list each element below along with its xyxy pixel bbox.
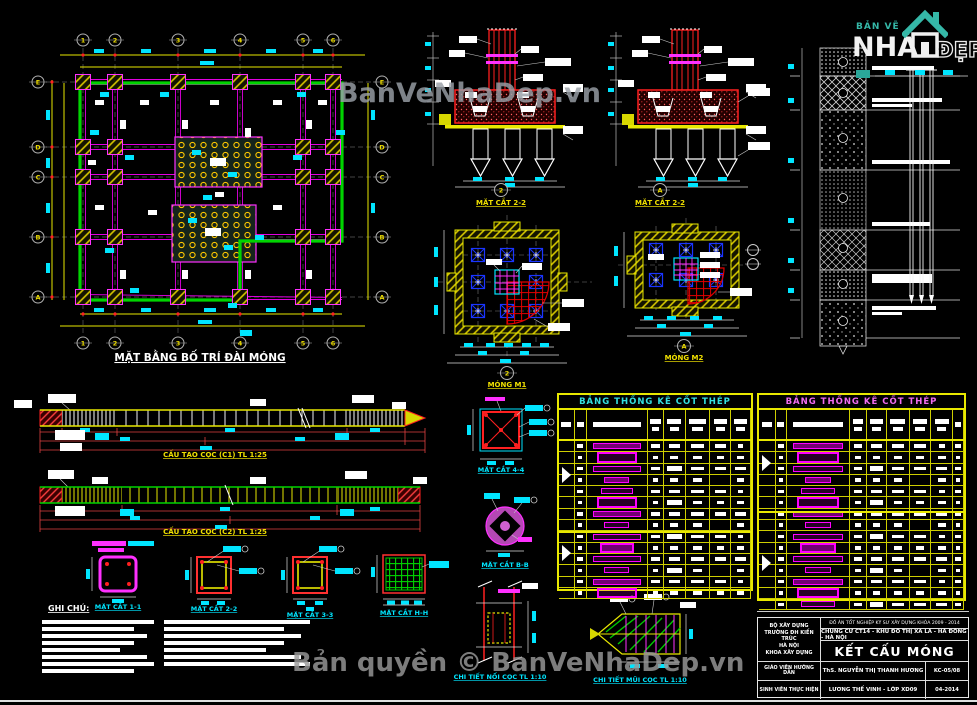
plan-title: MẶT BẰNG BỐ TRÍ ĐÀI MÓNG [114,349,285,364]
table-row [559,452,751,463]
svg-text:E: E [380,79,384,87]
rebar-table-1-header [559,410,751,441]
table-row [759,565,964,576]
table-row [759,543,964,554]
note-line [164,620,310,624]
table-row [759,577,964,588]
table-row [559,565,751,576]
m1-title: MÓNG M1 [488,380,527,389]
notes-col-2 [164,620,310,673]
table-row [759,531,964,542]
table-row [759,497,964,508]
note-line [164,655,301,659]
svg-text:3: 3 [176,340,181,348]
svg-text:5: 5 [301,340,306,348]
note-line [42,634,147,638]
svg-text:C: C [36,174,41,182]
title-block-row: SINH VIÊN THỰC HIỆN LƯƠNG THẾ VINH - LỚP… [758,681,968,699]
table-row [559,531,751,542]
rebar-table-2-body [759,441,964,610]
svg-text:5: 5 [301,37,306,45]
table-row [759,520,964,531]
table-row [559,441,751,452]
row-code: KC-05/08 [926,662,968,680]
rebar-table-1: BẢNG THỐNG KÊ CỐT THÉP [557,393,753,591]
project-line: ĐỒ ÁN TỐT NGHIỆP KỸ SƯ XÂY DỰNG KHÓA 200… [821,618,968,629]
logo-dep-text: ĐẸP [936,38,977,62]
cad-sheet: 1 2 3 4 5 6 1 2 3 4 5 6 E D C B A E D C … [0,0,977,705]
org-line: HÀ NỘI [779,643,799,649]
brand-logo: BẢN VẼ NHÀ ĐẸP [850,6,974,72]
tip-title: CHI TIẾT MŨI CỌC TL 1:10 [593,674,687,684]
table-row [559,464,751,475]
note-line [42,627,134,631]
rebar-table-1-body [559,441,751,599]
note-line [42,669,134,673]
table-row [759,475,964,486]
table-row [559,588,751,599]
org-line: BỘ XÂY DỰNG [769,623,808,629]
elevation-markers [788,64,794,293]
csbb-title: MẶT CẮT B-B [481,559,528,569]
cross-section-h-h: MẶT CẮT H-H [371,555,449,617]
cs2-title: MẶT CẮT 2-2 [191,603,237,613]
notes-col-1 [42,620,154,673]
pile-tip-detail: CHI TIẾT MŨI CỌC TL 1:10 [590,594,696,684]
row-label: GIÁO VIÊN HƯỚNG DẪN [758,662,821,680]
table-row [559,486,751,497]
note-line [164,627,284,631]
cs1-title: MẶT CẮT 1-1 [95,601,142,611]
cross-section-4-4: MẶT CẮT 4-4 [467,397,554,474]
table-row [559,475,751,486]
table-row [759,441,964,452]
svg-text:2: 2 [113,37,118,45]
m2-title: MÓNG M2 [665,353,704,362]
note-line [164,662,310,666]
rebar-table-2-title: BẢNG THỐNG KÊ CỐT THÉP [759,395,964,410]
table-row [759,554,964,565]
note-line [42,655,147,659]
section-title: MẶT CẮT 2-2 [635,197,685,207]
row-value: LƯƠNG THẾ VINH - LỚP XD09 [821,681,926,699]
notes-heading: GHI CHÚ: [48,602,89,613]
svg-text:A: A [379,294,384,302]
pile-detail-c1: CẤU TẠO CỌC (C1) TL 1:25 [14,394,425,459]
svg-text:6: 6 [331,340,336,348]
title-block: BỘ XÂY DỰNG TRƯỜNG ĐH KIẾN TRÚC HÀ NỘI K… [757,617,969,698]
table-row [559,520,751,531]
building-line: CHUNG CƯ CT14 - KHU ĐÔ THỊ XA LA - HÀ ĐÔ… [821,629,968,641]
table-row [559,554,751,565]
section-bubble: A [657,187,662,195]
sheet-border [0,700,977,702]
foundation-plan-m2: A MÓNG M2 [614,218,762,362]
table-row [759,588,964,599]
row-code: 04-2014 [926,681,968,699]
soil-layer-labels [872,66,950,315]
rebar-table-2: BẢNG THỐNG KÊ CỐT THÉP [757,393,966,601]
pile-c1-title: CẤU TẠO CỌC (C1) TL 1:25 [163,449,267,459]
notes-block [42,620,310,673]
m2-bubble: A [681,343,686,351]
title-block-row: GIÁO VIÊN HƯỚNG DẪN ThS. NGUYỄN THỊ THAN… [758,662,968,681]
table-row [759,452,964,463]
svg-text:6: 6 [331,37,336,45]
svg-text:4: 4 [238,340,243,348]
svg-text:C: C [380,174,385,182]
cs3-title: MẶT CẮT 3-3 [287,609,333,619]
svg-text:2: 2 [113,340,118,348]
note-line [164,648,266,652]
svg-text:E: E [36,79,40,87]
row-value: ThS. NGUYỄN THỊ THANH HƯƠNG [821,662,926,680]
svg-text:1: 1 [81,340,86,348]
soil-profile [788,48,960,354]
pile-splice-detail: CHI TIẾT NỐI CỌC TL 1:10 [454,581,547,681]
table-row [759,599,964,610]
section-bubble: 2 [499,187,504,195]
cross-section-b-b: MẶT CẮT B-B [481,493,537,569]
foundation-section-2: A MẶT CẮT 2-2 [608,29,770,207]
splice-title: CHI TIẾT NỐI CỌC TL 1:10 [454,671,547,681]
foundation-plan: 1 2 3 4 5 6 1 2 3 4 5 6 E D C B A E D C … [29,34,391,364]
cs-hh-title: MẶT CẮT H-H [380,607,428,617]
svg-text:4: 4 [238,37,243,45]
svg-text:A: A [35,294,40,302]
note-line [42,662,154,666]
table-row [559,497,751,508]
foundation-section-1: 2 MẶT CẮT 2-2 [425,29,583,207]
org-line: KHOA XÂY DỰNG [765,650,812,656]
logo-banve-text: BẢN VẼ [856,22,900,32]
table-row [759,486,964,497]
row-label: SINH VIÊN THỰC HIỆN [758,681,821,699]
svg-text:B: B [380,234,385,242]
title-block-org: BỘ XÂY DỰNG TRƯỜNG ĐH KIẾN TRÚC HÀ NỘI K… [758,618,821,661]
note-line [42,620,154,624]
m1-bubble: 2 [505,370,510,378]
svg-text:D: D [35,144,41,152]
cross-section-2-2: MẶT CẮT 2-2 [185,546,264,613]
cs4-title: MẶT CẮT 4-4 [478,464,525,474]
cross-section-1-1: MẶT CẮT 1-1 [86,541,154,611]
note-line [42,648,120,652]
foundation-plan-m1: 2 MÓNG M1 [434,215,592,389]
section-title: MẶT CẮT 2-2 [476,197,526,207]
rebar-table-1-title: BẢNG THỐNG KÊ CỐT THÉP [559,395,751,410]
cross-section-3-3: MẶT CẮT 3-3 [281,546,360,619]
piles-elevation [906,70,937,295]
table-row [559,509,751,520]
note-line [164,641,284,645]
table-row [759,464,964,475]
pile-detail-c2: CẤU TẠO CỌC (C2) TL 1:25 [40,470,427,536]
org-line: TRƯỜNG ĐH KIẾN TRÚC [758,630,820,642]
table-row [559,543,751,554]
svg-text:1: 1 [81,37,86,45]
svg-text:B: B [36,234,41,242]
note-line [42,641,134,645]
drawing-title: KẾT CẤU MÓNG [821,641,968,661]
svg-text:D: D [379,144,385,152]
note-line [164,634,301,638]
table-row [559,577,751,588]
svg-text:3: 3 [176,37,181,45]
rebar-table-2-header [759,410,964,441]
pile-c2-title: CẤU TẠO CỌC (C2) TL 1:25 [163,526,267,536]
